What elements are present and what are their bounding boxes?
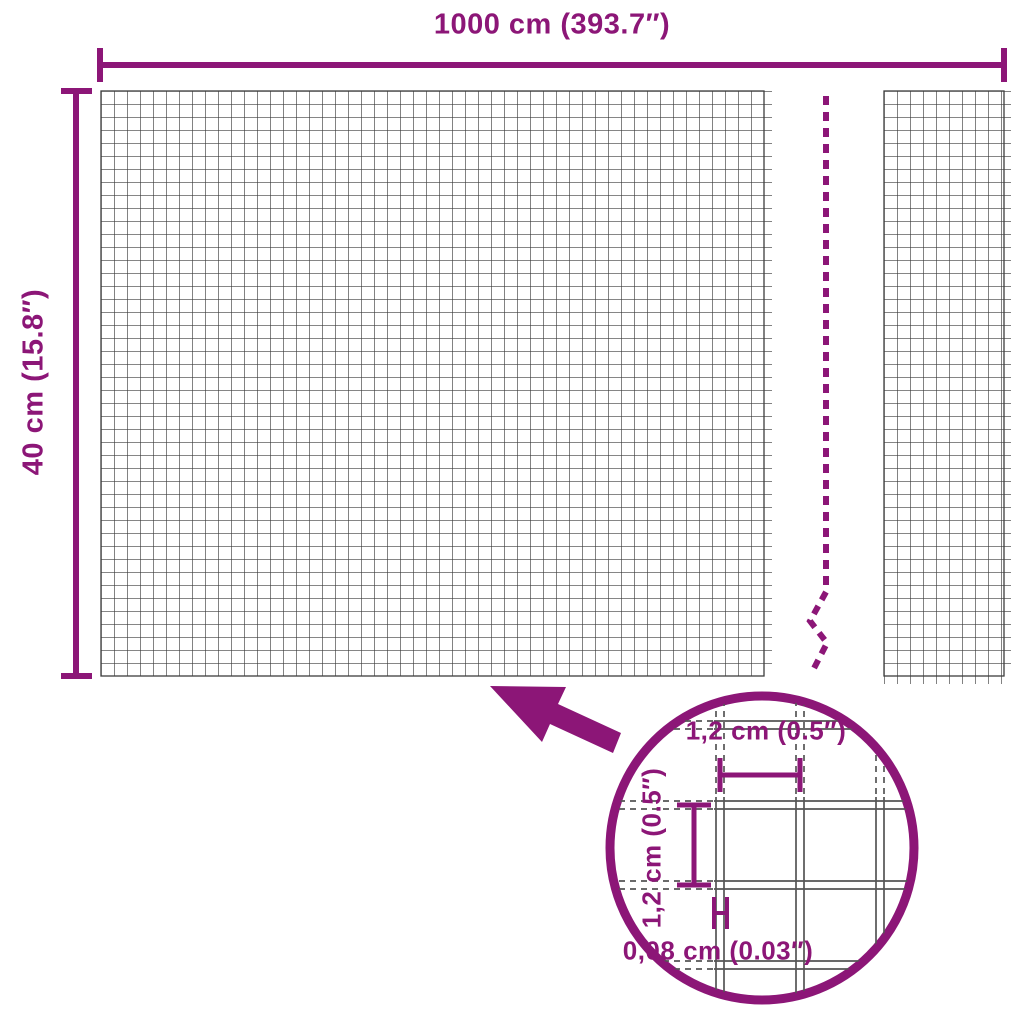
cell-width-label: 1,2 cm (0.5″) [686,716,847,747]
mesh-panel-right [884,91,1011,684]
break-line [810,96,827,674]
cell-height-label: 1,2 cm (0.5″) [637,768,668,929]
product-dimension-diagram: 1000 cm (393.7″) 40 cm (15.8″) 1,2 cm (0… [0,0,1024,1024]
height-dimension-line [61,91,92,676]
mesh-panel-left [101,91,772,676]
diagram-canvas [0,0,1024,1024]
height-dimension-label: 40 cm (15.8″) [18,289,51,475]
width-dimension-line [100,48,1004,82]
width-dimension-label: 1000 cm (393.7″) [434,9,670,42]
zoom-arrow-icon [490,686,621,753]
wire-thickness-label: 0,08 cm (0.03″) [623,936,814,967]
